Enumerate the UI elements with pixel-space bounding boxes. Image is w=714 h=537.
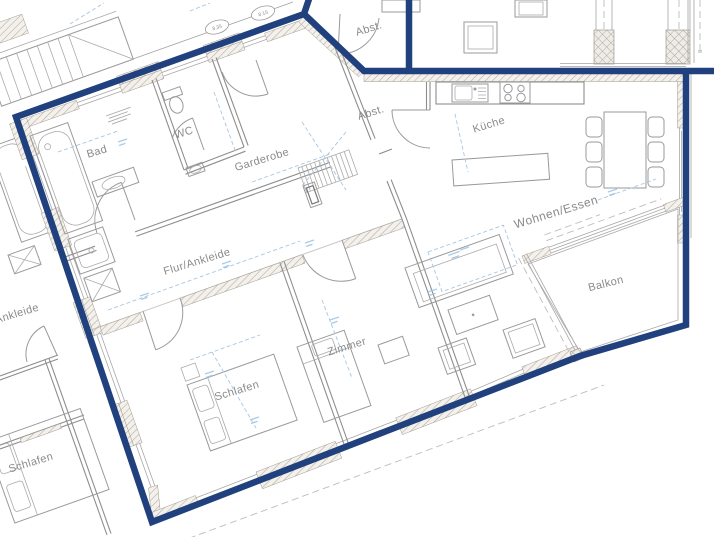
coffee-table-symbol (448, 295, 498, 334)
stove-symbol (500, 82, 530, 103)
neighbor-washer-symbol (8, 246, 41, 274)
room-label-schlafen: Schlafen (213, 379, 261, 404)
washbasin-symbol (92, 167, 139, 197)
floorplan-canvas: 8 (0, 0, 714, 537)
neighbor-top-right-walls: 8 (560, 0, 702, 67)
floorplan-page: 8 (0, 0, 714, 537)
chair (586, 142, 602, 162)
level-badge: 8.35 (204, 17, 231, 36)
room-label-balkon: Balkon (587, 274, 625, 294)
chair (586, 167, 602, 187)
planned-furniture-outline (428, 225, 517, 291)
entry-mat-symbol (303, 182, 322, 208)
dining-table (604, 112, 646, 188)
chair (648, 142, 664, 162)
wall-mark-label: 8 (696, 50, 702, 53)
chair (586, 117, 602, 137)
kitchen-island (452, 153, 550, 186)
room-label-schlafen-neighbor: Schlafen (7, 451, 55, 476)
room-label-wohnen-essen: Wohnen/Essen (512, 193, 599, 232)
entry-door (222, 60, 268, 96)
schlafen-door (143, 298, 183, 350)
room-label-flur-ankleide: Flur/Ankleide (162, 246, 232, 278)
chair (648, 167, 664, 187)
living-furniture (405, 225, 545, 374)
room-label-abst-top: Abst. (354, 19, 383, 38)
bad-note-lines (106, 107, 134, 125)
room-label-abst-kueche: Abst. (356, 103, 385, 122)
side-table-symbol (378, 336, 409, 364)
room-label-ankleide-neighbor: Ankleide (0, 302, 40, 327)
dining-set (586, 112, 664, 188)
armchair-symbol (503, 319, 545, 359)
bad-door (95, 182, 135, 233)
room-label-bad: Bad (85, 143, 108, 161)
room-label-kueche: Küche (471, 114, 506, 135)
room-label-wc: WC (173, 124, 195, 141)
interior-walls (62, 44, 471, 447)
sink-symbol (452, 84, 488, 102)
level-badge: 8.15 (250, 3, 277, 22)
wc-basin-symbol (186, 162, 205, 176)
sofa-symbol (405, 234, 513, 307)
abst-kueche-door (392, 110, 430, 148)
kitchen-fixtures (436, 82, 584, 186)
room-label-garderobe: Garderobe (233, 146, 290, 174)
toilet-symbol (162, 87, 188, 116)
level-badges: 8.35 8.15 (204, 3, 277, 36)
overhang-dashed-line (168, 385, 604, 537)
armchair-symbol (438, 338, 476, 374)
chair (648, 117, 664, 137)
dimension-text-marks (118, 139, 617, 424)
